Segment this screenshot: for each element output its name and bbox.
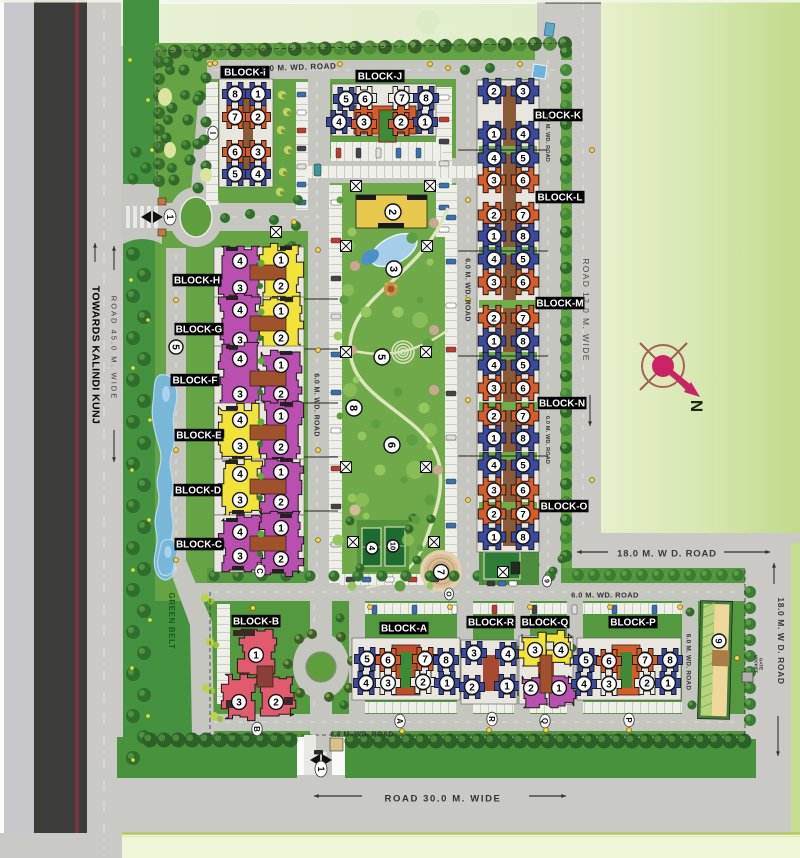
svg-text:3: 3 (471, 649, 477, 660)
svg-text:3: 3 (520, 86, 525, 97)
svg-text:5: 5 (375, 354, 387, 360)
svg-text:6.0 M. WD. ROAD: 6.0 M. WD. ROAD (313, 373, 320, 437)
svg-text:10: 10 (388, 542, 397, 550)
svg-text:6.0 M. WD. ROAD: 6.0 M. WD. ROAD (330, 732, 394, 739)
svg-text:1: 1 (278, 256, 284, 267)
svg-text:8: 8 (520, 231, 525, 242)
svg-text:R: R (487, 716, 496, 722)
svg-text:3: 3 (606, 680, 612, 691)
svg-text:4: 4 (491, 360, 497, 371)
svg-text:7: 7 (520, 411, 525, 422)
svg-text:BLOCK-R: BLOCK-R (468, 618, 515, 629)
svg-text:TOWARDS KALINDI KUNJ: TOWARDS KALINDI KUNJ (89, 286, 101, 424)
svg-text:BLOCK-C: BLOCK-C (176, 540, 222, 551)
svg-text:1: 1 (491, 532, 497, 543)
svg-text:N: N (687, 400, 706, 412)
svg-text:Q: Q (540, 718, 549, 724)
svg-text:6: 6 (385, 442, 397, 448)
svg-text:1: 1 (504, 682, 510, 693)
svg-text:4: 4 (491, 254, 497, 265)
svg-text:2: 2 (491, 313, 496, 324)
svg-text:3: 3 (491, 175, 496, 186)
svg-text:BLOCK-K: BLOCK-K (535, 111, 582, 122)
svg-text:7: 7 (520, 210, 525, 221)
svg-text:BLOCK-G: BLOCK-G (176, 325, 223, 336)
svg-text:7: 7 (422, 655, 428, 666)
svg-text:BLOCK-H: BLOCK-H (174, 276, 220, 287)
svg-text:O: O (445, 591, 452, 597)
svg-text:8: 8 (520, 336, 525, 347)
svg-text:7: 7 (520, 313, 525, 324)
svg-text:5: 5 (364, 655, 370, 666)
svg-text:2: 2 (273, 698, 279, 709)
svg-text:3: 3 (491, 383, 496, 394)
svg-text:2: 2 (255, 113, 261, 124)
svg-text:2: 2 (278, 443, 284, 454)
svg-text:4: 4 (237, 355, 243, 366)
svg-text:1: 1 (316, 766, 326, 771)
svg-text:6: 6 (520, 485, 525, 496)
svg-text:8: 8 (232, 90, 238, 101)
svg-text:4: 4 (491, 153, 497, 164)
svg-text:1: 1 (665, 679, 671, 690)
svg-text:5: 5 (520, 254, 526, 265)
svg-text:6: 6 (520, 383, 525, 394)
svg-text:3: 3 (387, 266, 399, 272)
svg-text:4: 4 (255, 170, 261, 181)
svg-text:3: 3 (491, 277, 496, 288)
svg-text:4: 4 (367, 546, 377, 551)
svg-text:1: 1 (278, 361, 284, 372)
svg-text:3: 3 (255, 148, 261, 159)
svg-text:BLOCK-J: BLOCK-J (358, 72, 402, 83)
svg-text:6: 6 (232, 148, 238, 159)
svg-text:1: 1 (422, 118, 428, 129)
svg-text:9: 9 (713, 638, 724, 643)
svg-text:2: 2 (398, 118, 404, 129)
svg-text:BLOCK-D: BLOCK-D (175, 486, 221, 497)
svg-text:7: 7 (520, 509, 525, 520)
svg-text:4: 4 (237, 528, 243, 539)
svg-text:2: 2 (469, 683, 475, 694)
svg-text:7: 7 (232, 113, 238, 124)
svg-text:1: 1 (491, 231, 497, 242)
svg-text:2: 2 (420, 678, 426, 689)
svg-text:7: 7 (642, 656, 648, 667)
svg-text:I: I (208, 132, 217, 134)
svg-text:4: 4 (520, 129, 526, 140)
svg-text:6.0 M. WD. ROAD: 6.0 M. WD. ROAD (544, 114, 550, 162)
svg-text:BLOCK-A: BLOCK-A (381, 624, 427, 635)
svg-text:6.0 M. WD. ROAD: 6.0 M. WD. ROAD (685, 634, 692, 691)
svg-text:1: 1 (165, 214, 175, 219)
svg-text:1: 1 (491, 129, 497, 140)
svg-text:2: 2 (386, 209, 398, 215)
svg-text:2: 2 (528, 684, 534, 695)
svg-text:2: 2 (491, 411, 496, 422)
svg-text:B: B (252, 726, 261, 732)
svg-text:3: 3 (237, 390, 243, 401)
svg-text:1: 1 (278, 412, 284, 423)
svg-text:1: 1 (253, 651, 259, 662)
svg-text:3: 3 (532, 646, 538, 657)
svg-text:3: 3 (237, 442, 243, 453)
svg-text:1: 1 (491, 433, 497, 444)
svg-text:5: 5 (583, 656, 589, 667)
svg-text:8: 8 (520, 532, 525, 543)
svg-text:5: 5 (232, 170, 238, 181)
svg-text:BLOCK-N: BLOCK-N (539, 399, 585, 410)
svg-text:BLOCK-Q: BLOCK-Q (522, 618, 569, 629)
svg-text:1: 1 (278, 307, 284, 318)
svg-text:2: 2 (491, 509, 496, 520)
svg-text:5: 5 (520, 460, 526, 471)
svg-text:3: 3 (237, 336, 243, 347)
svg-text:BLOCK-P: BLOCK-P (610, 618, 656, 629)
svg-text:6.0 M. WD. ROAD: 6.0 M. WD. ROAD (571, 591, 639, 600)
svg-text:3: 3 (361, 118, 367, 129)
svg-text:8: 8 (443, 656, 449, 667)
svg-text:1: 1 (556, 684, 562, 695)
svg-text:2: 2 (278, 498, 284, 509)
svg-text:4: 4 (581, 680, 587, 691)
svg-text:BLOCK-E: BLOCK-E (176, 431, 222, 442)
svg-text:7: 7 (399, 94, 405, 105)
svg-text:18.0 M. W D. ROAD: 18.0 M. W D. ROAD (617, 548, 717, 559)
svg-text:3: 3 (385, 679, 391, 690)
svg-text:8: 8 (347, 405, 359, 411)
svg-text:18.0 M. W D. ROAD: 18.0 M. W D. ROAD (776, 597, 786, 684)
svg-text:3: 3 (236, 698, 242, 709)
svg-text:2: 2 (278, 282, 284, 293)
svg-text:5: 5 (520, 153, 526, 164)
svg-text:P: P (624, 717, 633, 723)
svg-text:BLOCK-F: BLOCK-F (173, 376, 218, 387)
svg-text:ROAD 12.0 M. WIDE: ROAD 12.0 M. WIDE (581, 258, 591, 362)
svg-text:1: 1 (491, 336, 497, 347)
svg-text:2: 2 (491, 210, 496, 221)
svg-text:6: 6 (520, 277, 525, 288)
svg-text:ROAD 45.0 M. WIDE: ROAD 45.0 M. WIDE (109, 296, 118, 400)
svg-text:5: 5 (169, 344, 180, 350)
svg-text:4: 4 (491, 460, 497, 471)
svg-text:6: 6 (606, 657, 612, 668)
svg-text:2: 2 (644, 679, 650, 690)
svg-text:3: 3 (237, 496, 243, 507)
svg-text:1: 1 (255, 90, 261, 101)
svg-text:8: 8 (423, 94, 429, 105)
svg-text:8: 8 (520, 433, 525, 444)
svg-text:5: 5 (343, 95, 349, 106)
svg-text:ROAD 30.0 M. WIDE: ROAD 30.0 M. WIDE (385, 793, 502, 804)
svg-text:3: 3 (491, 485, 496, 496)
svg-text:4: 4 (336, 118, 342, 129)
svg-text:6.0 M. WD. ROAD: 6.0 M. WD. ROAD (544, 416, 550, 464)
svg-text:GATE: GATE (758, 658, 763, 670)
svg-text:4: 4 (558, 646, 564, 657)
svg-text:6: 6 (520, 175, 525, 186)
svg-text:BLOCK-L: BLOCK-L (538, 193, 583, 204)
svg-text:6.0 M. WD. ROAD: 6.0 M. WD. ROAD (464, 258, 471, 322)
svg-text:6: 6 (385, 656, 391, 667)
svg-text:3: 3 (237, 552, 243, 563)
svg-text:4: 4 (363, 679, 369, 690)
svg-text:BLOCK-M: BLOCK-M (536, 299, 583, 310)
svg-text:5: 5 (520, 360, 526, 371)
svg-text:1: 1 (444, 679, 450, 690)
svg-text:7: 7 (434, 569, 445, 575)
svg-text:C: C (255, 568, 264, 574)
svg-text:A: A (395, 718, 404, 724)
svg-text:9: 9 (543, 579, 550, 583)
svg-text:4: 4 (237, 470, 243, 481)
svg-text:WICKET: WICKET (753, 655, 758, 673)
svg-text:2: 2 (491, 86, 496, 97)
svg-text:BLOCK-O: BLOCK-O (541, 502, 588, 513)
svg-text:8: 8 (667, 656, 673, 667)
svg-text:4: 4 (237, 306, 243, 317)
svg-text:1: 1 (278, 468, 284, 479)
svg-text:4: 4 (237, 416, 243, 427)
svg-text:1: 1 (278, 524, 284, 535)
svg-text:BLOCK-I: BLOCK-I (224, 68, 266, 79)
svg-text:BLOCK-B: BLOCK-B (233, 617, 279, 628)
svg-text:6: 6 (362, 95, 368, 106)
svg-text:2: 2 (278, 555, 284, 566)
svg-text:GREEN BELT: GREEN BELT (167, 593, 176, 650)
svg-text:4: 4 (505, 650, 511, 661)
svg-text:4: 4 (237, 257, 243, 268)
svg-text:2: 2 (278, 334, 284, 345)
